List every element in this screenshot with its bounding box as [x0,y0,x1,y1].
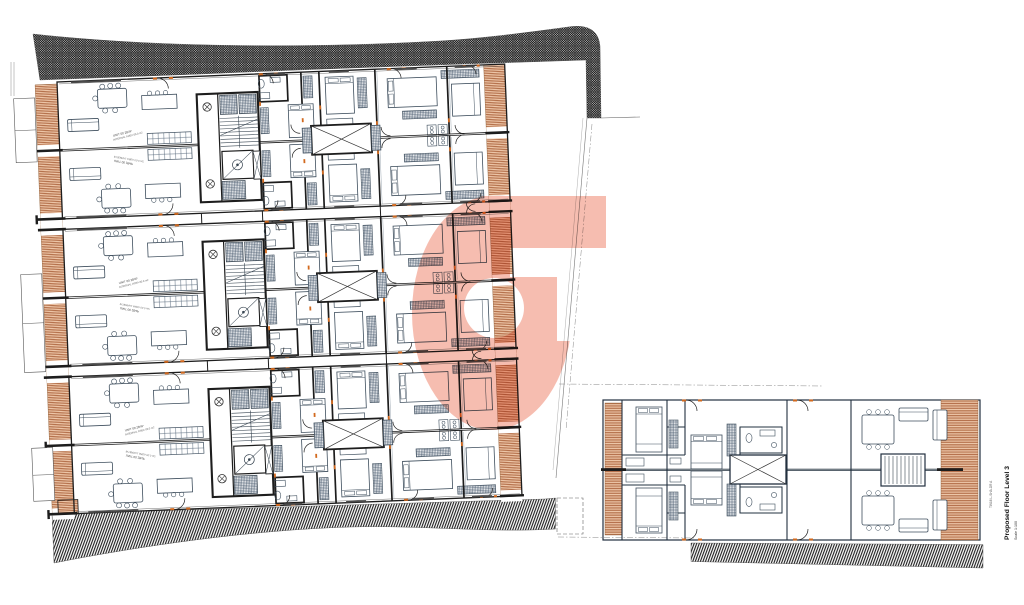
svg-text:Scale 1:100: Scale 1:100 [1014,521,1018,540]
svg-text:Proposed Floor Level 3: Proposed Floor Level 3 [1004,466,1011,540]
svg-text:TW16 L-SHA-DR A: TW16 L-SHA-DR A [989,480,993,508]
